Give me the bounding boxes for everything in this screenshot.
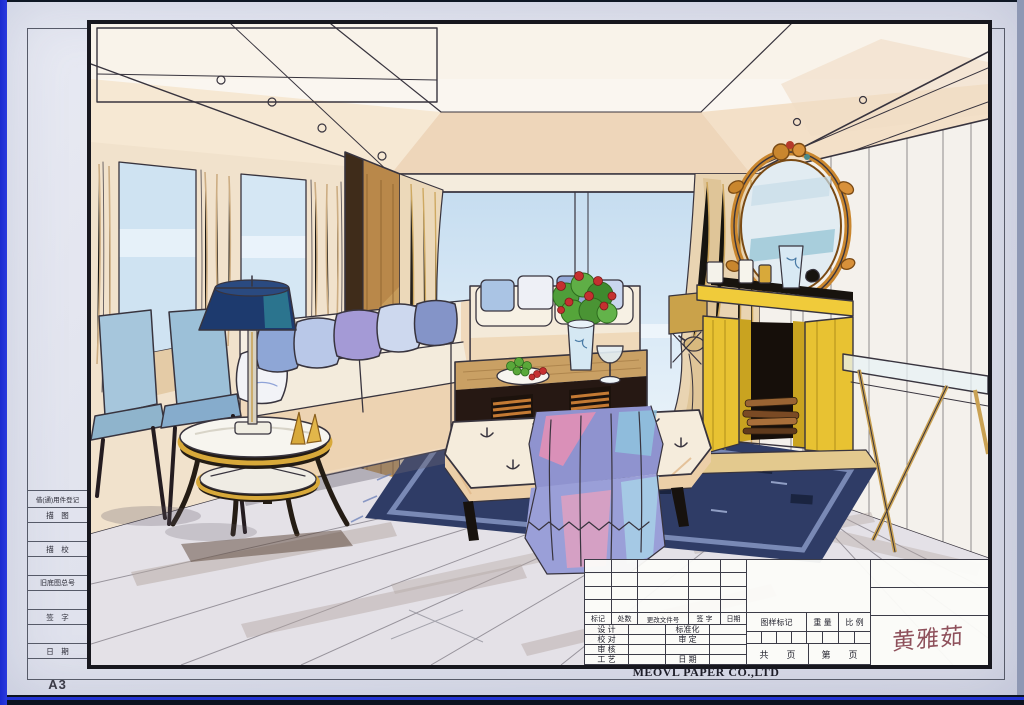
photo-edge-bottom bbox=[0, 695, 1024, 705]
sheet-size-label: A3 bbox=[27, 677, 88, 692]
throw-blanket bbox=[525, 406, 665, 574]
strip-row: 日 期 bbox=[27, 644, 88, 659]
page-number-label: 第 页 bbox=[809, 644, 871, 665]
drawing-mark-area bbox=[747, 560, 871, 613]
drawing-frame: 标记 处数 更改文件号 签 字 日期 设 计 标准化 校 对 审 定 审 核 工… bbox=[87, 20, 992, 669]
strip-row: 描 图 bbox=[27, 508, 88, 523]
strip-row: 旧底图总号 bbox=[27, 576, 88, 591]
strip-row bbox=[27, 625, 88, 644]
strip-row: 签 字 bbox=[27, 610, 88, 625]
pages-total-label: 共 页 bbox=[747, 644, 809, 665]
firewood-logs bbox=[743, 397, 799, 434]
strip-row: 借(通)用件登记 bbox=[27, 491, 88, 508]
drawing-mark-label: 图样标记 bbox=[747, 613, 807, 632]
strip-row: 描 校 bbox=[27, 542, 88, 557]
mark-subcells bbox=[747, 632, 871, 644]
photo-edge-right bbox=[1017, 0, 1024, 705]
strip-row bbox=[27, 557, 88, 576]
revision-header-row: 标记 处数 更改文件号 签 字 日期 bbox=[585, 613, 747, 625]
strip-row bbox=[27, 591, 88, 610]
staff-rows: 设 计 标准化 校 对 审 定 审 核 工 艺 日 期 bbox=[585, 625, 747, 665]
scale-label: 比 例 bbox=[839, 613, 871, 632]
strip-row bbox=[27, 523, 88, 542]
weight-label: 重 量 bbox=[807, 613, 839, 632]
photo-edge-left bbox=[0, 0, 7, 705]
left-registration-strip: 借(通)用件登记 描 图 描 校 旧底图总号 签 字 日 期 bbox=[27, 490, 88, 680]
revision-grid bbox=[585, 560, 747, 613]
paper-company-name: MEOVL PAPER CO.,LTD bbox=[506, 665, 906, 680]
drawing-sheet: 借(通)用件登记 描 图 描 校 旧底图总号 签 字 日 期 bbox=[6, 2, 1018, 696]
